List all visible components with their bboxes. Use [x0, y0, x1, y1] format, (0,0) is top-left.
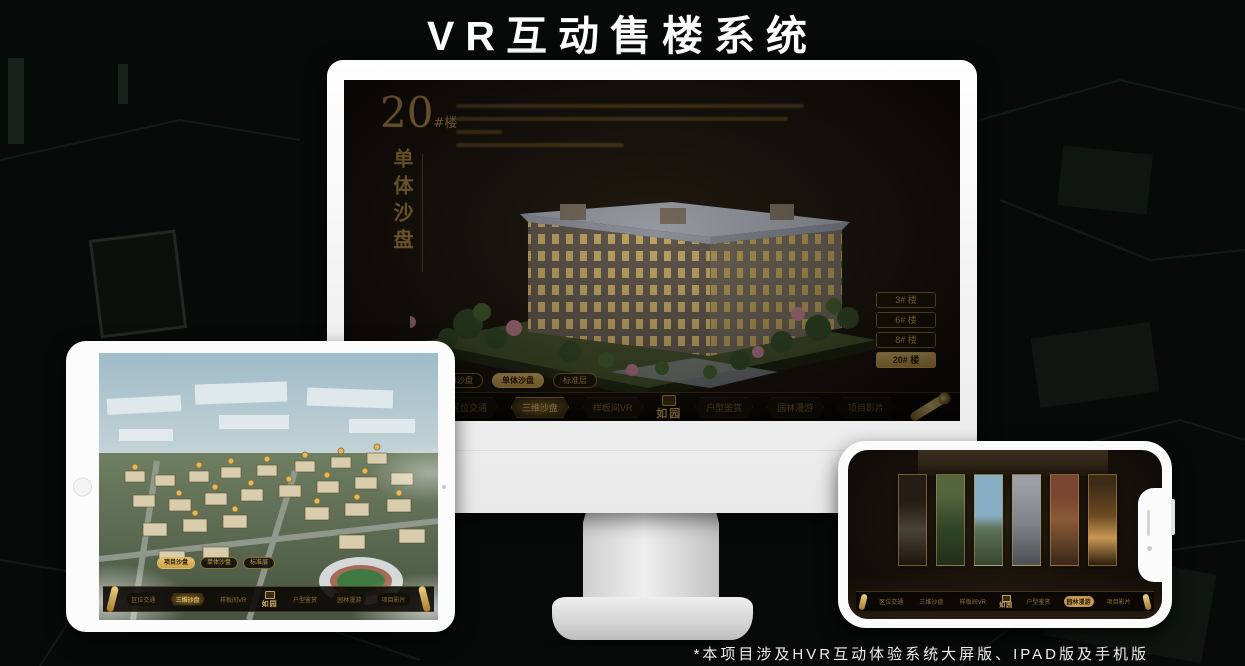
gallery-panel-building[interactable] — [1012, 474, 1041, 566]
phone-device: 区位交通 三维沙盘 样板间VR 如园 户型鉴赏 园林漫游 项目影片 — [838, 441, 1172, 628]
tablet-nav-project-film[interactable]: 项目影片 — [377, 593, 411, 606]
camera-icon — [1147, 546, 1152, 551]
phone-brand-logo-text: 如园 — [999, 603, 1013, 609]
gallery-panels — [898, 474, 1117, 566]
nav-item-floorplan[interactable]: 户型鉴赏 — [695, 397, 753, 418]
tablet-brand-logo-text: 如园 — [262, 600, 278, 607]
tablet-sub-tabs: 项目沙盘 单体沙盘 标准层 — [157, 557, 275, 569]
aerial-masterplan-illustration[interactable] — [99, 353, 438, 620]
nav-item-3d-sandtable[interactable]: 三维沙盘 — [511, 397, 569, 418]
footnote: *本项目涉及HVR互动体验系统大屏版、IPAD版及手机版 — [694, 643, 1149, 664]
phone-nav-garden-roam[interactable]: 园林漫游 — [1064, 596, 1094, 607]
tablet-nav-location-traffic[interactable]: 区位交通 — [126, 593, 160, 606]
building-3d-model[interactable] — [410, 146, 890, 398]
phone-nav-showroom-vr[interactable]: 样板间VR — [957, 596, 989, 607]
speaker-icon — [1147, 510, 1150, 536]
brand-logo[interactable]: 如园 — [656, 395, 682, 419]
camera-icon — [442, 485, 446, 489]
seal-icon — [265, 591, 275, 599]
tablet-nav-garden-roam[interactable]: 园林漫游 — [332, 593, 366, 606]
monitor-stand-base — [552, 597, 753, 640]
tablet-brand-logo[interactable]: 如园 — [262, 591, 278, 607]
nav-item-project-film[interactable]: 项目影片 — [837, 397, 895, 418]
tablet-tab-single-sandtable[interactable]: 单体沙盘 — [200, 557, 238, 569]
phone-screen: 区位交通 三维沙盘 样板间VR 如园 户型鉴赏 园林漫游 项目影片 — [848, 450, 1162, 619]
building-button-3[interactable]: 3# 楼 — [876, 292, 936, 308]
building-button-20[interactable]: 20# 楼 — [876, 352, 936, 368]
seal-icon — [662, 395, 676, 406]
phone-side-button[interactable] — [1171, 499, 1175, 535]
tablet-nav-showroom-vr[interactable]: 样板间VR — [215, 593, 251, 606]
building-headline: 20#楼 — [380, 92, 457, 134]
tablet-device: 项目沙盘 单体沙盘 标准层 区位交通 三维沙盘 样板间VR 如园 户型鉴赏 园林… — [66, 341, 455, 632]
building-selector: 3# 楼 6# 楼 8# 楼 20# 楼 — [876, 292, 936, 368]
phone-brand-logo[interactable]: 如园 — [999, 595, 1013, 609]
phone-nav-location-traffic[interactable]: 区位交通 — [876, 596, 906, 607]
scroll-left-icon — [858, 593, 868, 610]
phone-notch — [1138, 488, 1162, 582]
monitor-stand-neck — [583, 513, 719, 601]
phone-navbar: 区位交通 三维沙盘 样板间VR 如园 户型鉴赏 园林漫游 项目影片 — [856, 591, 1154, 611]
phone-nav-3d-sandtable[interactable]: 三维沙盘 — [916, 596, 946, 607]
building-button-8[interactable]: 8# 楼 — [876, 332, 936, 348]
tablet-nav-floorplan[interactable]: 户型鉴赏 — [288, 593, 322, 606]
nav-item-showroom-vr[interactable]: 样板间VR — [582, 397, 644, 418]
seal-icon — [1002, 595, 1011, 602]
interior-ceiling — [918, 450, 1108, 476]
tablet-screen: 项目沙盘 单体沙盘 标准层 区位交通 三维沙盘 样板间VR 如园 户型鉴赏 园林… — [99, 353, 438, 620]
gallery-panel-lit-shelves[interactable] — [1088, 474, 1117, 566]
building-number: 20 — [380, 88, 433, 137]
tablet-tab-standard-floor[interactable]: 标准层 — [243, 557, 275, 569]
tab-single-sandtable[interactable]: 单体沙盘 — [492, 373, 544, 388]
scroll-left-icon — [106, 586, 119, 613]
tablet-nav-3d-sandtable[interactable]: 三维沙盘 — [171, 593, 205, 606]
nav-item-garden-roam[interactable]: 园林漫游 — [766, 397, 824, 418]
page-title: VR互动售楼系统 — [0, 2, 1245, 62]
scroll-right-icon — [418, 586, 431, 613]
brand-logo-text: 如园 — [656, 408, 682, 419]
phone-nav-floorplan[interactable]: 户型鉴赏 — [1023, 596, 1053, 607]
tablet-tab-project-sandtable[interactable]: 项目沙盘 — [157, 557, 195, 569]
scroll-icon[interactable] — [909, 392, 949, 421]
scroll-right-icon — [1142, 593, 1152, 610]
building-number-suffix: #楼 — [433, 116, 457, 131]
monitor-sub-tabs: 项目沙盘 单体沙盘 标准层 — [431, 373, 597, 388]
gallery-panel-interior[interactable] — [898, 474, 927, 566]
gallery-panel-garden[interactable] — [936, 474, 965, 566]
building-button-6[interactable]: 6# 楼 — [876, 312, 936, 328]
page: VR互动售楼系统 20#楼 单体沙盘 — [0, 0, 1245, 666]
phone-nav-project-film[interactable]: 项目影片 — [1104, 596, 1134, 607]
tab-standard-floor[interactable]: 标准层 — [553, 373, 597, 388]
gallery-panel-landscape[interactable] — [974, 474, 1003, 566]
gallery-panel-autumn[interactable] — [1050, 474, 1079, 566]
tablet-navbar: 区位交通 三维沙盘 样板间VR 如园 户型鉴赏 园林漫游 项目影片 — [103, 586, 434, 612]
home-button[interactable] — [73, 477, 92, 496]
